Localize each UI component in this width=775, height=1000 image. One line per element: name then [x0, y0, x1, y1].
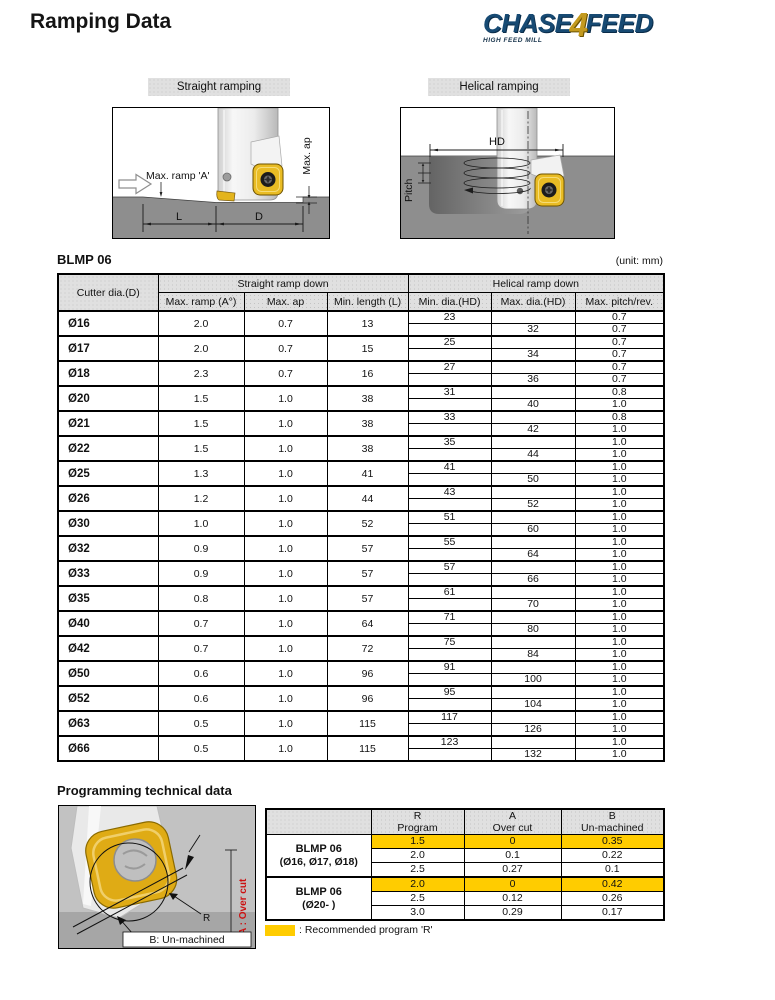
max-dia-cell-blank	[491, 636, 575, 649]
cutter-row: Ø301.01.052511.0	[58, 511, 664, 524]
max-dia-cell-blank	[491, 661, 575, 674]
pitch-top-cell: 1.0	[575, 461, 664, 474]
max-dia-cell: 32	[491, 324, 575, 337]
col-header-cutter-dia: Cutter dia.(D)	[58, 274, 158, 311]
pitch-bottom-cell: 1.0	[575, 449, 664, 462]
pitch-bottom-cell: 1.0	[575, 524, 664, 537]
straight-ramping-label: Straight ramping	[148, 78, 290, 96]
min-dia-cell: 95	[408, 686, 491, 699]
pitch-bottom-cell: 1.0	[575, 574, 664, 587]
ramping-data-table: Cutter dia.(D) Straight ramp down Helica…	[57, 273, 665, 762]
max-dia-cell-blank	[491, 486, 575, 499]
max-dia-cell-blank	[491, 461, 575, 474]
pitch-top-cell: 1.0	[575, 486, 664, 499]
max-dia-cell-blank	[491, 686, 575, 699]
min-dia-cell-blank	[408, 699, 491, 712]
cutter-row: Ø630.51.01151171.0	[58, 711, 664, 724]
min-length-cell: 57	[327, 586, 408, 611]
max-ramp-cell: 1.5	[158, 386, 244, 411]
prog-header-r: R Program	[371, 809, 464, 835]
prog-r-cell: 2.5	[371, 892, 464, 906]
prog-row: BLMP 06(Ø16, Ø17, Ø18)1.500.35	[266, 835, 664, 849]
max-ap-cell: 1.0	[244, 486, 327, 511]
max-ap-cell: 1.0	[244, 736, 327, 761]
cutter-dia-cell: Ø18	[58, 361, 158, 386]
max-ap-cell: 1.0	[244, 511, 327, 536]
min-length-cell: 115	[327, 736, 408, 761]
min-length-cell: 52	[327, 511, 408, 536]
coolant-hole	[517, 188, 523, 194]
page: Ramping Data CHASE4FEED HIGH FEED MILL S…	[0, 0, 775, 1000]
pitch-top-cell: 1.0	[575, 611, 664, 624]
helical-ramping-label: Helical ramping	[428, 78, 570, 96]
min-length-cell: 57	[327, 536, 408, 561]
min-length-cell: 72	[327, 636, 408, 661]
min-dia-cell-blank	[408, 649, 491, 662]
max-ap-cell: 1.0	[244, 611, 327, 636]
min-length-cell: 96	[327, 686, 408, 711]
max-ramp-label: Max. ramp 'A'	[146, 170, 210, 182]
pitch-bottom-cell: 1.0	[575, 499, 664, 512]
cutter-row: Ø162.00.713230.7	[58, 311, 664, 324]
prog-group-range: (Ø20- )	[267, 899, 371, 911]
max-ap-cell: 0.7	[244, 361, 327, 386]
coolant-hole	[223, 173, 231, 181]
max-ap-cell: 0.7	[244, 311, 327, 336]
pitch-bottom-cell: 1.0	[575, 699, 664, 712]
prog-b-cell: 0.22	[561, 849, 664, 863]
min-dia-cell: 55	[408, 536, 491, 549]
prog-header-b-line2: Un-machined	[562, 822, 664, 834]
pitch-top-cell: 0.7	[575, 311, 664, 324]
pitch-top-cell: 1.0	[575, 636, 664, 649]
max-ap-cell: 1.0	[244, 636, 327, 661]
max-ap-cell: 0.7	[244, 336, 327, 361]
prog-b-cell: 0.42	[561, 877, 664, 892]
l-dimension-label: L	[176, 211, 182, 223]
min-length-cell: 16	[327, 361, 408, 386]
programming-data-table: R Program A Over cut B Un-machined BLMP …	[265, 808, 665, 921]
recommended-swatch	[265, 925, 295, 936]
prog-r-cell: 2.0	[371, 849, 464, 863]
max-dia-cell: 66	[491, 574, 575, 587]
r-annotation-label: R	[203, 913, 210, 924]
pitch-bottom-cell: 1.0	[575, 724, 664, 737]
max-dia-cell: 42	[491, 424, 575, 437]
max-dia-cell: 44	[491, 449, 575, 462]
max-dia-cell-blank	[491, 336, 575, 349]
cutter-row: Ø221.51.038351.0	[58, 436, 664, 449]
pitch-top-cell: 0.8	[575, 411, 664, 424]
logo-four: 4	[570, 12, 588, 38]
min-dia-cell: 51	[408, 511, 491, 524]
max-ramp-cell: 0.8	[158, 586, 244, 611]
cutter-row: Ø350.81.057611.0	[58, 586, 664, 599]
prog-b-cell: 0.26	[561, 892, 664, 906]
pitch-top-cell: 0.8	[575, 386, 664, 399]
logo-chase: CHASE	[483, 10, 572, 36]
max-ap-cell: 1.0	[244, 586, 327, 611]
prog-header-r-line1: R	[372, 810, 464, 822]
min-dia-cell: 35	[408, 436, 491, 449]
pitch-bottom-cell: 1.0	[575, 424, 664, 437]
col-header-min-length: Min. length (L)	[327, 293, 408, 312]
max-ramp-cell: 0.5	[158, 711, 244, 736]
min-length-cell: 41	[327, 461, 408, 486]
max-dia-cell-blank	[491, 361, 575, 374]
max-ap-cell: 1.0	[244, 386, 327, 411]
max-dia-cell: 70	[491, 599, 575, 612]
main-table-caption: BLMP 06 (unit: mm)	[57, 252, 663, 267]
prog-header-empty	[266, 809, 371, 835]
helical-ramping-diagram: HD Pitch	[400, 107, 615, 239]
max-dia-cell-blank	[491, 611, 575, 624]
group-header-row: Cutter dia.(D) Straight ramp down Helica…	[58, 274, 664, 293]
max-dia-cell: 104	[491, 699, 575, 712]
min-dia-cell: 123	[408, 736, 491, 749]
insert-screw-icon	[114, 839, 156, 881]
cutter-row: Ø400.71.064711.0	[58, 611, 664, 624]
max-ramp-cell: 1.5	[158, 436, 244, 461]
cutter-dia-cell: Ø20	[58, 386, 158, 411]
min-dia-cell-blank	[408, 499, 491, 512]
cutter-row: Ø330.91.057571.0	[58, 561, 664, 574]
group-header-straight: Straight ramp down	[158, 274, 408, 293]
cutter-dia-cell: Ø25	[58, 461, 158, 486]
max-ap-cell: 1.0	[244, 461, 327, 486]
min-dia-cell-blank	[408, 399, 491, 412]
pitch-top-cell: 1.0	[575, 561, 664, 574]
min-dia-cell-blank	[408, 674, 491, 687]
prog-r-cell: 3.0	[371, 906, 464, 921]
min-dia-cell-blank	[408, 424, 491, 437]
cutter-dia-cell: Ø32	[58, 536, 158, 561]
cutter-dia-cell: Ø30	[58, 511, 158, 536]
pitch-bottom-cell: 1.0	[575, 624, 664, 637]
max-ap-cell: 1.0	[244, 411, 327, 436]
prog-r-cell: 2.5	[371, 863, 464, 878]
min-length-cell: 15	[327, 336, 408, 361]
main-table-title: BLMP 06	[57, 252, 112, 267]
cutter-row: Ø420.71.072751.0	[58, 636, 664, 649]
max-dia-cell-blank	[491, 386, 575, 399]
max-ap-cell: 1.0	[244, 686, 327, 711]
cutter-row: Ø182.30.716270.7	[58, 361, 664, 374]
max-ap-cell: 1.0	[244, 536, 327, 561]
min-dia-cell-blank	[408, 374, 491, 387]
overcut-annotation-label: A : Over cut	[238, 878, 249, 935]
max-dia-cell: 36	[491, 374, 575, 387]
max-ramp-cell: 2.3	[158, 361, 244, 386]
min-dia-cell-blank	[408, 724, 491, 737]
max-ramp-cell: 0.5	[158, 736, 244, 761]
page-title: Ramping Data	[30, 10, 171, 34]
pitch-bottom-cell: 0.7	[575, 324, 664, 337]
min-dia-cell-blank	[408, 749, 491, 762]
cutter-dia-cell: Ø33	[58, 561, 158, 586]
prog-b-cell: 0.17	[561, 906, 664, 921]
min-dia-cell: 57	[408, 561, 491, 574]
min-dia-cell-blank	[408, 574, 491, 587]
left-insert	[217, 191, 235, 201]
cutter-row: Ø251.31.041411.0	[58, 461, 664, 474]
max-ramp-cell: 2.0	[158, 336, 244, 361]
pitch-dimension-label: Pitch	[403, 178, 415, 202]
min-dia-cell: 91	[408, 661, 491, 674]
max-ramp-cell: 0.6	[158, 661, 244, 686]
min-length-cell: 44	[327, 486, 408, 511]
min-dia-cell-blank	[408, 449, 491, 462]
brand-logo: CHASE4FEED HIGH FEED MILL	[483, 10, 653, 44]
pitch-top-cell: 1.0	[575, 661, 664, 674]
min-dia-cell: 27	[408, 361, 491, 374]
min-dia-cell-blank	[408, 624, 491, 637]
prog-header-row: R Program A Over cut B Un-machined	[266, 809, 664, 835]
prog-a-cell: 0	[464, 835, 561, 849]
pitch-top-cell: 1.0	[575, 511, 664, 524]
pitch-top-cell: 1.0	[575, 536, 664, 549]
cutter-dia-cell: Ø50	[58, 661, 158, 686]
col-header-max-pitch: Max. pitch/rev.	[575, 293, 664, 312]
pitch-bottom-cell: 1.0	[575, 599, 664, 612]
unmachined-annotation-label: B: Un-machined	[149, 934, 224, 946]
straight-ramping-diagram: Max. ramp 'A' Max. ap L D	[112, 107, 330, 239]
max-dia-cell: 60	[491, 524, 575, 537]
max-ramp-cell: 1.5	[158, 411, 244, 436]
pitch-bottom-cell: 1.0	[575, 474, 664, 487]
hd-dimension-label: HD	[489, 136, 505, 148]
prog-group-label: BLMP 06(Ø16, Ø17, Ø18)	[266, 835, 371, 878]
max-dia-cell: 40	[491, 399, 575, 412]
d-dimension-label: D	[255, 211, 263, 223]
min-dia-cell: 75	[408, 636, 491, 649]
prog-a-cell: 0.27	[464, 863, 561, 878]
prog-b-cell: 0.1	[561, 863, 664, 878]
prog-a-cell: 0	[464, 877, 561, 892]
straight-ramping-illustration: Max. ramp 'A' Max. ap L D	[113, 108, 329, 238]
cutter-dia-cell: Ø52	[58, 686, 158, 711]
col-header-min-dia: Min. dia.(HD)	[408, 293, 491, 312]
min-dia-cell-blank	[408, 549, 491, 562]
prog-header-b-line1: B	[562, 810, 664, 822]
max-ramp-cell: 1.2	[158, 486, 244, 511]
helical-ramping-illustration: HD Pitch	[401, 108, 614, 238]
prog-group-name: BLMP 06	[267, 886, 371, 899]
col-header-max-ap: Max. ap	[244, 293, 327, 312]
prog-header-a: A Over cut	[464, 809, 561, 835]
max-ramp-cell: 0.9	[158, 561, 244, 586]
col-header-max-ramp: Max. ramp (A°)	[158, 293, 244, 312]
min-length-cell: 38	[327, 386, 408, 411]
max-ap-cell: 1.0	[244, 661, 327, 686]
pitch-bottom-cell: 1.0	[575, 749, 664, 762]
min-dia-cell: 43	[408, 486, 491, 499]
cutter-dia-cell: Ø22	[58, 436, 158, 461]
legend-text: : Recommended program 'R'	[299, 924, 433, 936]
max-dia-cell-blank	[491, 561, 575, 574]
min-dia-cell-blank	[408, 474, 491, 487]
cutter-dia-cell: Ø21	[58, 411, 158, 436]
max-dia-cell: 132	[491, 749, 575, 762]
min-length-cell: 115	[327, 711, 408, 736]
min-dia-cell: 61	[408, 586, 491, 599]
cutter-row: Ø520.61.096951.0	[58, 686, 664, 699]
max-ramp-cell: 0.6	[158, 686, 244, 711]
brand-logo-text: CHASE4FEED	[483, 10, 653, 36]
max-ap-cell: 1.0	[244, 436, 327, 461]
prog-header-r-line2: Program	[372, 822, 464, 834]
cutter-dia-cell: Ø66	[58, 736, 158, 761]
min-length-cell: 64	[327, 611, 408, 636]
min-dia-cell: 31	[408, 386, 491, 399]
max-ramp-cell: 2.0	[158, 311, 244, 336]
cutter-dia-cell: Ø17	[58, 336, 158, 361]
cutter-row: Ø660.51.01151231.0	[58, 736, 664, 749]
min-dia-cell-blank	[408, 324, 491, 337]
min-dia-cell: 33	[408, 411, 491, 424]
max-dia-cell-blank	[491, 536, 575, 549]
max-dia-cell: 64	[491, 549, 575, 562]
pitch-bottom-cell: 0.7	[575, 349, 664, 362]
max-dia-cell-blank	[491, 511, 575, 524]
max-dia-cell: 126	[491, 724, 575, 737]
min-length-cell: 96	[327, 661, 408, 686]
max-dia-cell: 50	[491, 474, 575, 487]
min-length-cell: 13	[327, 311, 408, 336]
cutter-dia-cell: Ø63	[58, 711, 158, 736]
prog-row: BLMP 06(Ø20- )2.000.42	[266, 877, 664, 892]
min-dia-cell: 71	[408, 611, 491, 624]
max-ap-cell: 1.0	[244, 561, 327, 586]
prog-a-cell: 0.1	[464, 849, 561, 863]
pitch-top-cell: 1.0	[575, 736, 664, 749]
prog-group-range: (Ø16, Ø17, Ø18)	[267, 856, 371, 868]
cutter-dia-cell: Ø40	[58, 611, 158, 636]
pitch-bottom-cell: 0.7	[575, 374, 664, 387]
prog-group-name: BLMP 06	[267, 843, 371, 856]
max-ramp-cell: 1.3	[158, 461, 244, 486]
pitch-top-cell: 1.0	[575, 686, 664, 699]
prog-group-label: BLMP 06(Ø20- )	[266, 877, 371, 920]
prog-header-a-line2: Over cut	[465, 822, 561, 834]
max-dia-cell-blank	[491, 436, 575, 449]
min-dia-cell-blank	[408, 349, 491, 362]
pitch-top-cell: 1.0	[575, 586, 664, 599]
min-dia-cell: 23	[408, 311, 491, 324]
prog-header-a-line1: A	[465, 810, 561, 822]
prog-r-cell: 1.5	[371, 835, 464, 849]
max-ap-label: Max. ap	[301, 137, 313, 175]
group-header-helical: Helical ramp down	[408, 274, 664, 293]
max-dia-cell-blank	[491, 711, 575, 724]
max-ramp-cell: 1.0	[158, 511, 244, 536]
col-header-max-dia: Max. dia.(HD)	[491, 293, 575, 312]
pitch-top-cell: 0.7	[575, 336, 664, 349]
prog-a-cell: 0.12	[464, 892, 561, 906]
pitch-top-cell: 1.0	[575, 711, 664, 724]
pitch-bottom-cell: 1.0	[575, 674, 664, 687]
unit-note: (unit: mm)	[616, 255, 663, 267]
min-dia-cell-blank	[408, 524, 491, 537]
min-dia-cell-blank	[408, 599, 491, 612]
max-ramp-cell: 0.9	[158, 536, 244, 561]
max-dia-cell-blank	[491, 736, 575, 749]
max-dia-cell: 100	[491, 674, 575, 687]
max-ramp-cell: 0.7	[158, 611, 244, 636]
cutter-dia-cell: Ø35	[58, 586, 158, 611]
min-dia-cell: 117	[408, 711, 491, 724]
cutter-row: Ø172.00.715250.7	[58, 336, 664, 349]
programming-illustration: R A : Over cut B: Un-machined	[58, 805, 256, 949]
pitch-bottom-cell: 1.0	[575, 399, 664, 412]
cutter-dia-cell: Ø26	[58, 486, 158, 511]
min-dia-cell: 25	[408, 336, 491, 349]
logo-tagline: HIGH FEED MILL	[483, 37, 653, 44]
pitch-bottom-cell: 1.0	[575, 649, 664, 662]
cutter-dia-cell: Ø16	[58, 311, 158, 336]
cutter-row: Ø500.61.096911.0	[58, 661, 664, 674]
prog-r-cell: 2.0	[371, 877, 464, 892]
max-dia-cell: 34	[491, 349, 575, 362]
min-dia-cell: 41	[408, 461, 491, 474]
max-dia-cell-blank	[491, 311, 575, 324]
min-length-cell: 38	[327, 411, 408, 436]
cutter-dia-cell: Ø42	[58, 636, 158, 661]
max-ramp-cell: 0.7	[158, 636, 244, 661]
prog-b-cell: 0.35	[561, 835, 664, 849]
max-dia-cell: 80	[491, 624, 575, 637]
max-dia-cell-blank	[491, 586, 575, 599]
min-length-cell: 57	[327, 561, 408, 586]
overcut-illustration: R A : Over cut B: Un-machined	[59, 806, 255, 948]
cutter-row: Ø261.21.044431.0	[58, 486, 664, 499]
max-ap-cell: 1.0	[244, 711, 327, 736]
cutter-row: Ø201.51.038310.8	[58, 386, 664, 399]
prog-a-cell: 0.29	[464, 906, 561, 921]
pitch-bottom-cell: 1.0	[575, 549, 664, 562]
max-dia-cell: 52	[491, 499, 575, 512]
max-dia-cell: 84	[491, 649, 575, 662]
pitch-top-cell: 1.0	[575, 436, 664, 449]
legend: : Recommended program 'R'	[265, 924, 433, 936]
logo-feed: FEED	[585, 10, 652, 36]
min-length-cell: 38	[327, 436, 408, 461]
cutter-row: Ø320.91.057551.0	[58, 536, 664, 549]
cutter-row: Ø211.51.038330.8	[58, 411, 664, 424]
programming-section-title: Programming technical data	[57, 783, 232, 798]
prog-header-b: B Un-machined	[561, 809, 664, 835]
max-dia-cell-blank	[491, 411, 575, 424]
pitch-top-cell: 0.7	[575, 361, 664, 374]
